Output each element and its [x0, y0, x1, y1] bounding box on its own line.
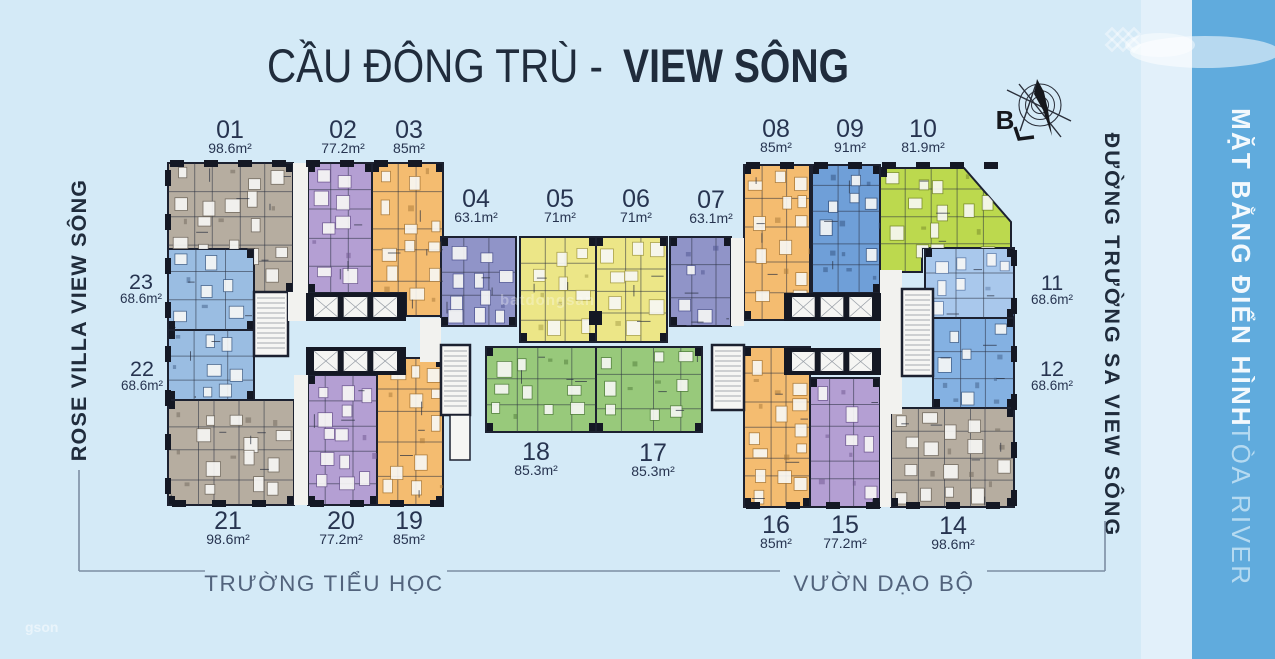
svg-text:85m²: 85m² — [760, 535, 792, 551]
svg-text:85m²: 85m² — [393, 140, 425, 156]
svg-text:68.6m²: 68.6m² — [1031, 378, 1074, 393]
svg-text:98.6m²: 98.6m² — [206, 531, 250, 547]
svg-text:71m²: 71m² — [544, 209, 576, 225]
svg-text:77.2m²: 77.2m² — [823, 535, 867, 551]
svg-text:B: B — [996, 105, 1015, 135]
svg-text:VIEW SÔNG: VIEW SÔNG — [623, 39, 849, 92]
svg-text:MẶT BẰNG ĐIỂN HÌNH: MẶT BẰNG ĐIỂN HÌNH — [1226, 108, 1256, 428]
svg-text:63.1m²: 63.1m² — [454, 209, 498, 225]
svg-text:91m²: 91m² — [834, 139, 866, 155]
svg-text:85m²: 85m² — [760, 139, 792, 155]
svg-text:98.6m²: 98.6m² — [208, 140, 252, 156]
svg-text:68.6m²: 68.6m² — [121, 378, 164, 393]
svg-text:ROSE VILLA VIEW SÔNG: ROSE VILLA VIEW SÔNG — [66, 179, 91, 461]
svg-text:ĐƯỜNG TRƯỜNG SA VIEW SÔNG: ĐƯỜNG TRƯỜNG SA VIEW SÔNG — [1100, 133, 1125, 538]
svg-text:77.2m²: 77.2m² — [319, 531, 363, 547]
svg-text:batdongsan: batdongsan — [500, 292, 595, 309]
svg-text:63.1m²: 63.1m² — [689, 210, 733, 226]
svg-text:77.2m²: 77.2m² — [321, 140, 365, 156]
svg-text:TÒA RIVER: TÒA RIVER — [1226, 425, 1256, 586]
svg-text:68.6m²: 68.6m² — [120, 291, 163, 306]
svg-text:VƯỜN DẠO BỘ: VƯỜN DẠO BỘ — [793, 571, 974, 596]
svg-text:71m²: 71m² — [620, 209, 652, 225]
svg-text:85.3m²: 85.3m² — [631, 463, 675, 479]
svg-text:CẦU ĐÔNG TRÙ -: CẦU ĐÔNG TRÙ - — [267, 39, 603, 92]
svg-text:68.6m²: 68.6m² — [1031, 292, 1074, 307]
svg-text:TRƯỜNG TIỂU HỌC: TRƯỜNG TIỂU HỌC — [204, 571, 444, 596]
svg-text:85.3m²: 85.3m² — [514, 462, 558, 478]
svg-text:81.9m²: 81.9m² — [901, 139, 945, 155]
svg-text:85m²: 85m² — [393, 531, 425, 547]
svg-text:gson: gson — [25, 619, 58, 635]
svg-text:98.6m²: 98.6m² — [931, 536, 975, 552]
